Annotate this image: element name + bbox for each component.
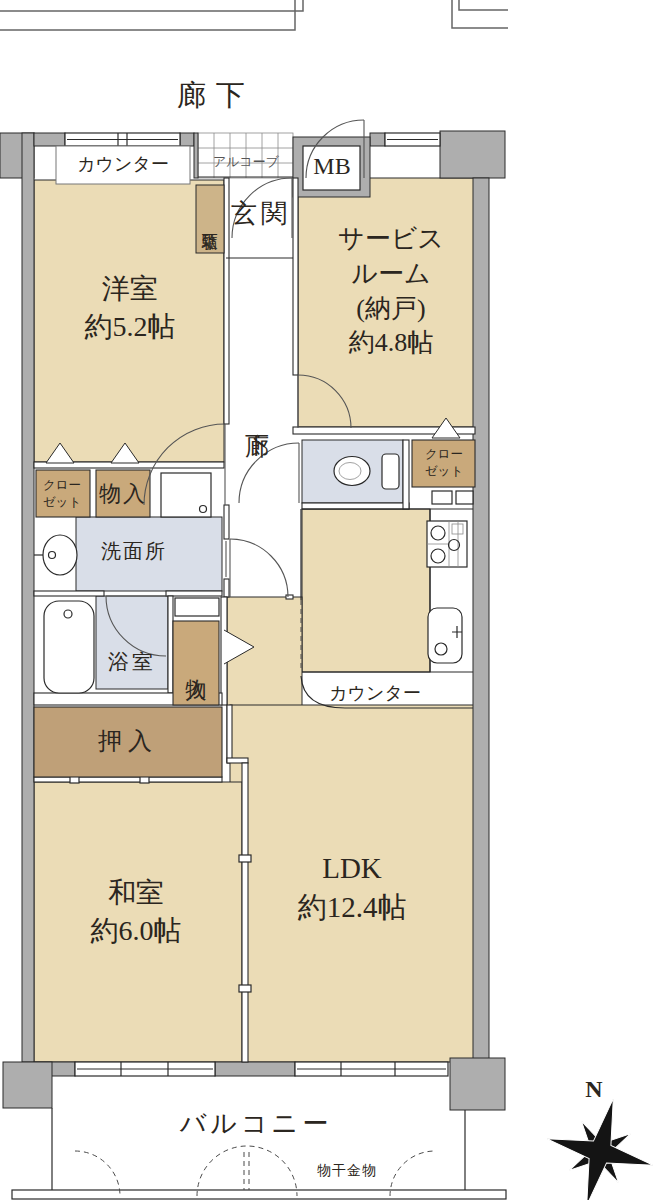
- laundry-hardware-label: 物干金物: [317, 1162, 377, 1181]
- stove: [427, 521, 467, 567]
- window-ldk: [295, 1062, 448, 1076]
- storage-middle-box: [173, 621, 219, 705]
- window-japanese-room: [75, 1062, 215, 1076]
- kitchen-counter-label: カウンター: [329, 681, 421, 705]
- washroom-label: 洗面所: [101, 538, 167, 565]
- balcony-partition-middle: [197, 1146, 297, 1196]
- balcony-label: バルコニー: [180, 1107, 332, 1142]
- building-corridor-outline: [0, 0, 508, 30]
- alcove-label: アルコーブ: [213, 153, 279, 170]
- bathroom-label: 浴室: [108, 648, 156, 676]
- closet-left-label: クロー ゼット: [43, 477, 81, 511]
- storage-left-label: 物入: [99, 479, 147, 508]
- hallway-label: 廊下: [241, 414, 273, 418]
- floor-plan: 廊下 カウンター アルコーブ MB 玄関 下駄箱 洋室 約5.2帖 サービス ル…: [0, 0, 660, 1200]
- kitchen-floor: [302, 509, 430, 672]
- toilet-door: [239, 443, 299, 503]
- compass-north-label: N: [585, 1073, 602, 1105]
- kitchen-sink: [428, 608, 462, 663]
- counter-top-label: カウンター: [77, 152, 169, 176]
- room-japanese-label: 和室 約6.0帖: [91, 874, 182, 949]
- shelf-box: [175, 598, 219, 616]
- window-counter-top: [65, 133, 180, 146]
- balcony-partition-left: [75, 1151, 120, 1196]
- closet-right-label: クロー ゼット: [425, 446, 463, 480]
- balcony-partition-right: [390, 1151, 435, 1196]
- oshiire-label: 押入: [98, 725, 158, 757]
- meter-box-label: MB: [313, 150, 350, 182]
- washer-pan: [161, 473, 211, 517]
- room-service-label: サービス ルーム (納戸) 約4.8帖: [338, 222, 444, 361]
- corridor-top-label: 廊下: [177, 76, 255, 115]
- wash-basin: [34, 535, 77, 575]
- room-western-label: 洋室 約5.2帖: [85, 270, 176, 345]
- shoe-cabinet-box: [196, 185, 224, 253]
- genkan-label: 玄関: [231, 197, 291, 232]
- window-service-top: [385, 133, 440, 146]
- room-ldk-label: LDK 約12.4帖: [298, 849, 407, 927]
- ldk-hall-door: [230, 539, 288, 597]
- bathtub: [44, 601, 94, 693]
